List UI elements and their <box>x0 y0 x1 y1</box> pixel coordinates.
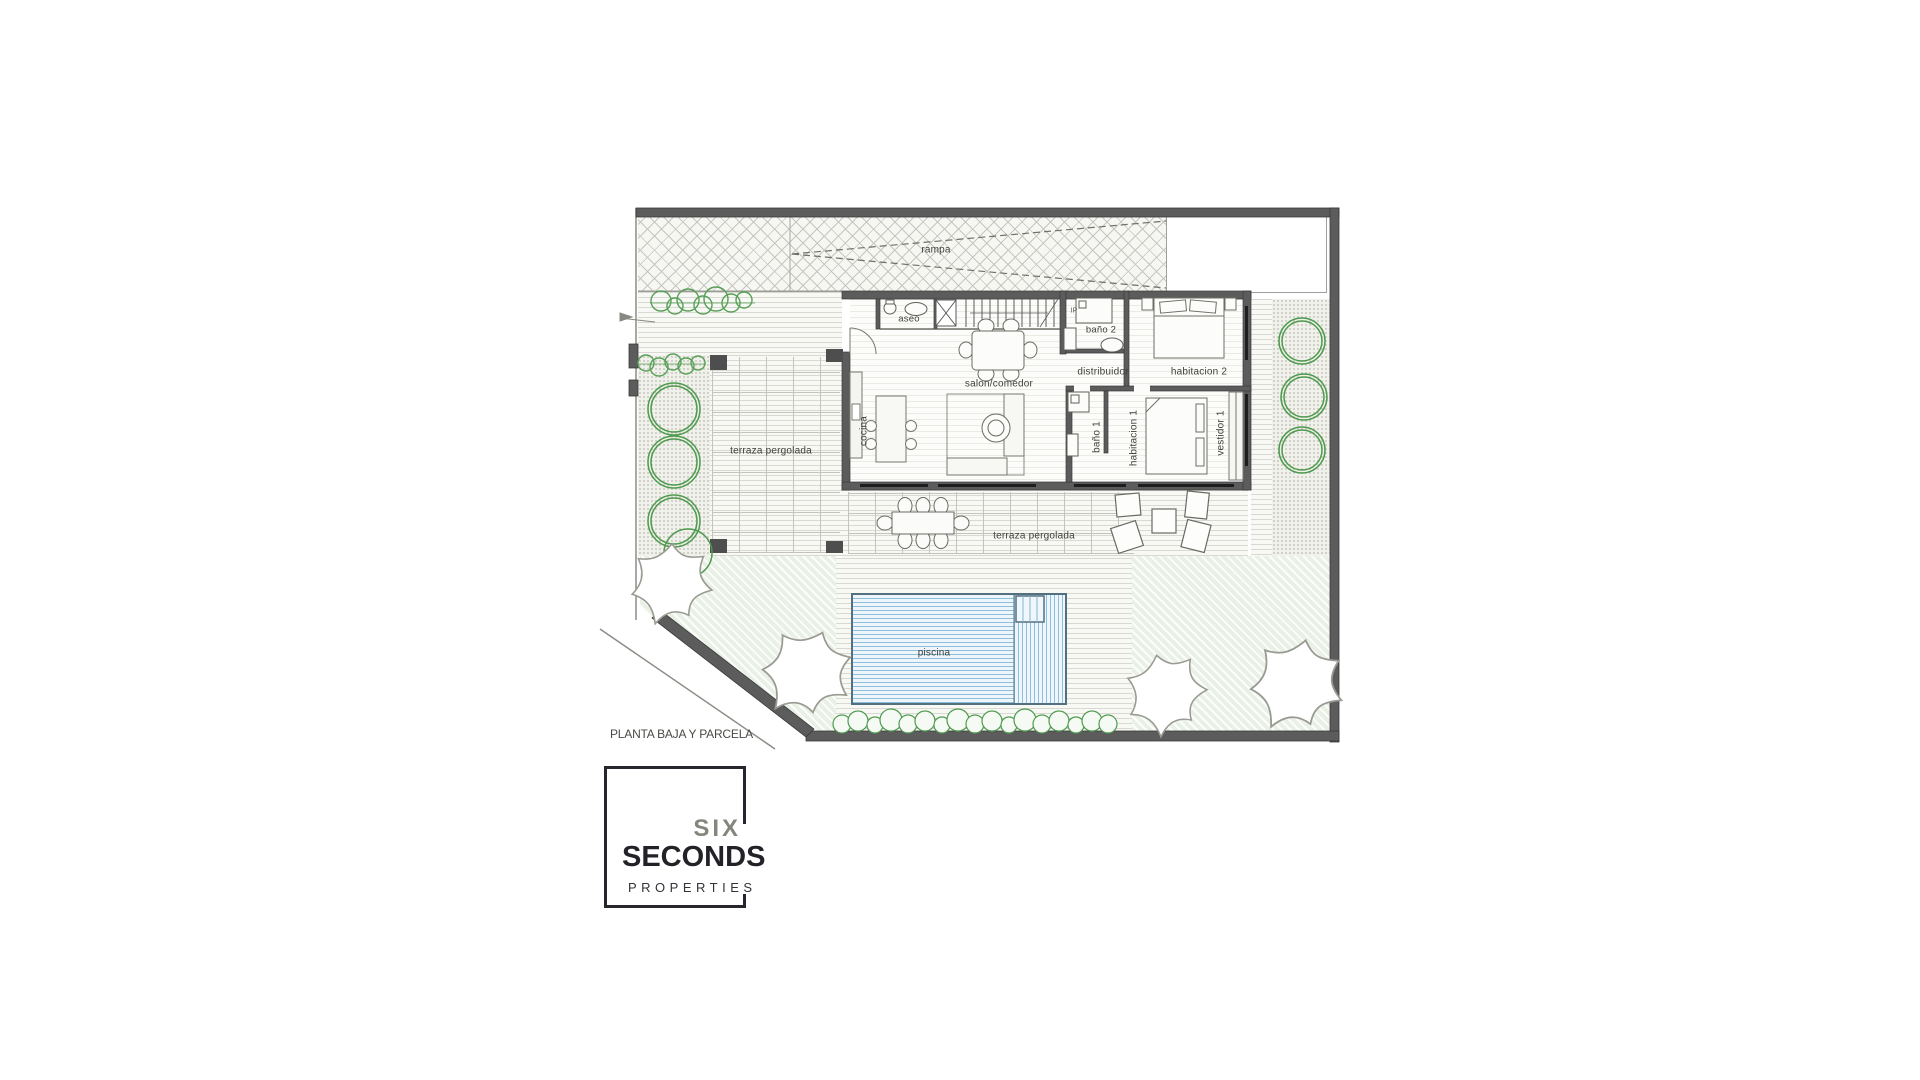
logo-border-segment <box>743 894 746 908</box>
label-bano-2: baño 2 <box>1086 325 1116 336</box>
page: rampa aseo IP baño 2 distribuidor habita… <box>0 0 1920 1080</box>
lawn-right <box>1132 556 1331 734</box>
label-rampa: rampa <box>921 245 950 256</box>
label-ip: IP <box>1070 308 1077 315</box>
label-terraza-pergolada-izq: terraza pergolada <box>730 446 812 457</box>
label-habitacion-1: habitacion 1 <box>1129 410 1140 466</box>
logo-word-properties: PROPERTIES <box>628 880 757 895</box>
label-vestidor-1: vestidor 1 <box>1216 410 1227 455</box>
label-distribuidor: distribuidor <box>1077 367 1128 378</box>
driveway-area <box>638 217 1166 292</box>
lawn-left <box>640 556 836 734</box>
logo-border-segment <box>743 766 746 824</box>
logo: SIX SECONDS PROPERTIES <box>604 766 743 908</box>
pool-shallow <box>1014 594 1066 704</box>
deck-right-strip <box>1251 299 1272 557</box>
label-terraza-pergolada-inf: terraza pergolada <box>993 531 1075 542</box>
label-piscina: piscina <box>918 648 951 659</box>
label-cocina: cocina <box>859 416 870 446</box>
garage-area <box>1166 212 1327 293</box>
label-habitacion-2: habitacion 2 <box>1171 367 1227 378</box>
gravel-strip-left <box>638 355 710 556</box>
plan-caption: PLANTA BAJA Y PARCELA <box>610 727 753 741</box>
label-bano-1: baño 1 <box>1092 421 1103 453</box>
gravel-strip-right <box>1272 299 1331 557</box>
label-salon-comedor: salon/comedor <box>965 379 1033 390</box>
deck-top-strip <box>638 292 842 355</box>
logo-word-seconds: SECONDS <box>622 841 765 874</box>
logo-word-six: SIX <box>693 815 741 843</box>
house-interior-floor <box>850 299 1243 482</box>
pergola-lower-grid <box>848 492 1134 554</box>
label-aseo: aseo <box>898 314 919 325</box>
